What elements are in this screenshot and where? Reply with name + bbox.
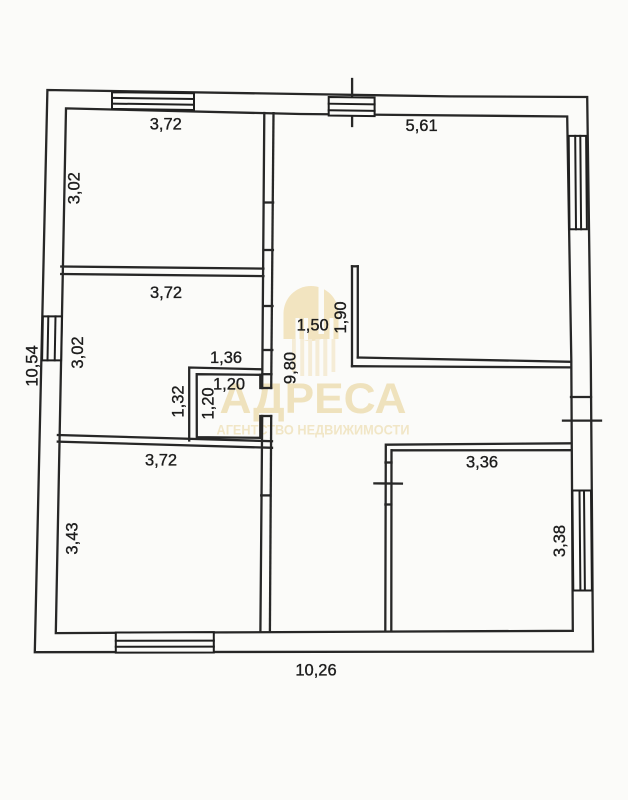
svg-text:АГЕНТСТВО НЕДВИЖИМОСТИ: АГЕНТСТВО НЕДВИЖИМОСТИ <box>217 422 410 437</box>
svg-text:1,32: 1,32 <box>169 385 187 417</box>
svg-text:9,80: 9,80 <box>281 352 299 384</box>
svg-text:3,02: 3,02 <box>66 172 84 204</box>
svg-text:5,61: 5,61 <box>406 117 438 135</box>
svg-text:10,54: 10,54 <box>24 345 42 386</box>
svg-text:1,36: 1,36 <box>210 349 242 367</box>
svg-text:1,90: 1,90 <box>332 301 350 333</box>
svg-text:3,43: 3,43 <box>63 522 81 554</box>
svg-text:3,02: 3,02 <box>69 336 87 368</box>
svg-text:3,72: 3,72 <box>150 284 182 302</box>
svg-text:АДРЕСА: АДРЕСА <box>220 376 407 423</box>
svg-text:3,38: 3,38 <box>551 525 569 557</box>
svg-text:1,20: 1,20 <box>200 387 218 419</box>
svg-text:1,20: 1,20 <box>213 376 245 394</box>
svg-text:3,72: 3,72 <box>145 452 177 470</box>
svg-text:1,50: 1,50 <box>297 317 329 335</box>
svg-text:10,26: 10,26 <box>295 662 336 680</box>
svg-text:3,36: 3,36 <box>466 454 498 472</box>
svg-text:3,72: 3,72 <box>150 115 182 133</box>
